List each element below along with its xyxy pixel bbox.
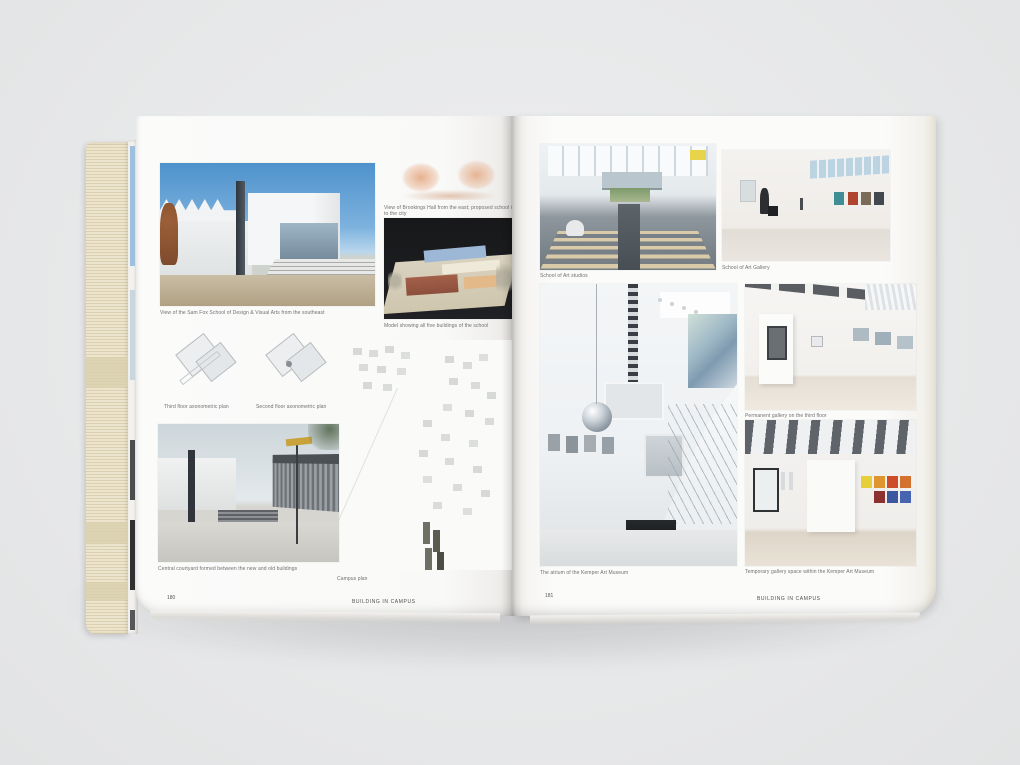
caption-temporary-gallery: Temporary gallery space within the Kempe… xyxy=(745,569,915,575)
drawing-plan-third-floor xyxy=(166,331,244,401)
caption-studios: School of Art studios xyxy=(540,273,680,279)
tree-branch xyxy=(308,424,339,450)
person-at-desk xyxy=(566,220,584,236)
lamp-post xyxy=(296,442,298,544)
photo-model xyxy=(384,218,516,319)
caption-plan-second: Second floor axonometric plan xyxy=(256,404,346,410)
page-edge-lightblue xyxy=(130,290,135,380)
page-number-left: 180 xyxy=(167,595,175,601)
distant-visitor xyxy=(800,198,803,210)
model-tan-building xyxy=(464,275,499,289)
page-edge-dark xyxy=(130,610,135,630)
dark-ceiling-beams xyxy=(745,420,916,454)
photo-central-courtyard xyxy=(158,424,339,562)
photo-permanent-gallery xyxy=(745,284,916,410)
photo-of-open-book: View of the Sam Fox School of Design & V… xyxy=(0,0,1020,765)
caption-permanent-gallery: Permanent gallery on the third floor xyxy=(745,413,905,419)
plaza-ground xyxy=(158,522,339,562)
atrium-floor xyxy=(540,530,737,566)
white-building-left xyxy=(158,458,236,510)
center-partition-wall xyxy=(807,460,855,532)
foreground-plaza xyxy=(160,275,375,306)
caption-campus-plan: Campus plan xyxy=(337,576,417,582)
model-trees xyxy=(388,268,402,294)
sketch-brookings-hall xyxy=(384,150,516,200)
small-artwork-far-wall xyxy=(811,336,823,347)
photo-sam-fox-school xyxy=(160,163,375,306)
model-brick-building xyxy=(405,274,458,296)
roof-band xyxy=(273,454,339,464)
artworks-right-wall xyxy=(853,328,869,341)
large-artwork-upper-right xyxy=(688,314,737,388)
downlights xyxy=(658,298,662,302)
running-title-left: BUILDING IN CAMPUS xyxy=(352,599,416,605)
rolling-bag xyxy=(768,206,778,216)
gridded-dark-frame xyxy=(753,468,779,512)
book-fore-edge-left xyxy=(86,142,130,634)
photo-temporary-gallery xyxy=(745,420,916,566)
center-aisle xyxy=(618,204,640,270)
fore-edge-patch xyxy=(86,582,130,600)
page-edge-blue xyxy=(130,146,135,266)
tree xyxy=(160,203,178,265)
artworks-left-wall xyxy=(548,434,560,451)
page-number-right: 181 xyxy=(545,593,553,599)
campus-buildings-light xyxy=(353,348,362,355)
stair-railings xyxy=(668,404,737,524)
photo-art-studios xyxy=(540,144,716,270)
doorway xyxy=(740,180,756,202)
artworks-on-wall xyxy=(834,192,844,205)
fore-edge-patch xyxy=(86,357,130,387)
running-title-right: BUILDING IN CAMPUS xyxy=(757,596,821,602)
page-edge-dark xyxy=(130,440,135,500)
caption-sam-fox: View of the Sam Fox School of Design & V… xyxy=(160,310,380,316)
campus-buildings-highlighted xyxy=(423,522,430,544)
drawing-plan-second-floor xyxy=(256,331,334,401)
photo-art-gallery xyxy=(722,150,890,261)
framed-artwork xyxy=(767,326,787,360)
caption-model: Model showing all five buildings of the … xyxy=(384,323,516,329)
yellow-banner xyxy=(690,150,706,160)
book-gutter xyxy=(502,116,522,616)
caption-sketch: View of Brookings Hall from the east; pr… xyxy=(384,205,516,218)
page-edge-dark xyxy=(130,520,135,590)
louvered-skylight xyxy=(865,284,916,310)
drawing-campus-plan xyxy=(337,340,515,570)
colorful-dot-artworks xyxy=(861,476,872,488)
caption-courtyard: Central courtyard formed between the new… xyxy=(158,566,348,572)
mirror-ball xyxy=(582,402,612,432)
dark-pylon xyxy=(188,450,195,522)
clerestory-windows xyxy=(810,155,890,179)
mezzanine-window xyxy=(604,382,664,420)
caption-plan-third: Third floor axonometric plan xyxy=(164,404,254,410)
mirror-ball-cable xyxy=(596,284,597,404)
photo-kemper-atrium xyxy=(540,284,737,566)
window-to-trees xyxy=(610,188,650,202)
caption-atrium: The atrium of the Kemper Art Museum xyxy=(540,570,730,576)
narrow-artworks xyxy=(781,472,785,490)
caption-gallery: School of Art Gallery xyxy=(722,265,862,271)
fore-edge-patch xyxy=(86,522,130,544)
